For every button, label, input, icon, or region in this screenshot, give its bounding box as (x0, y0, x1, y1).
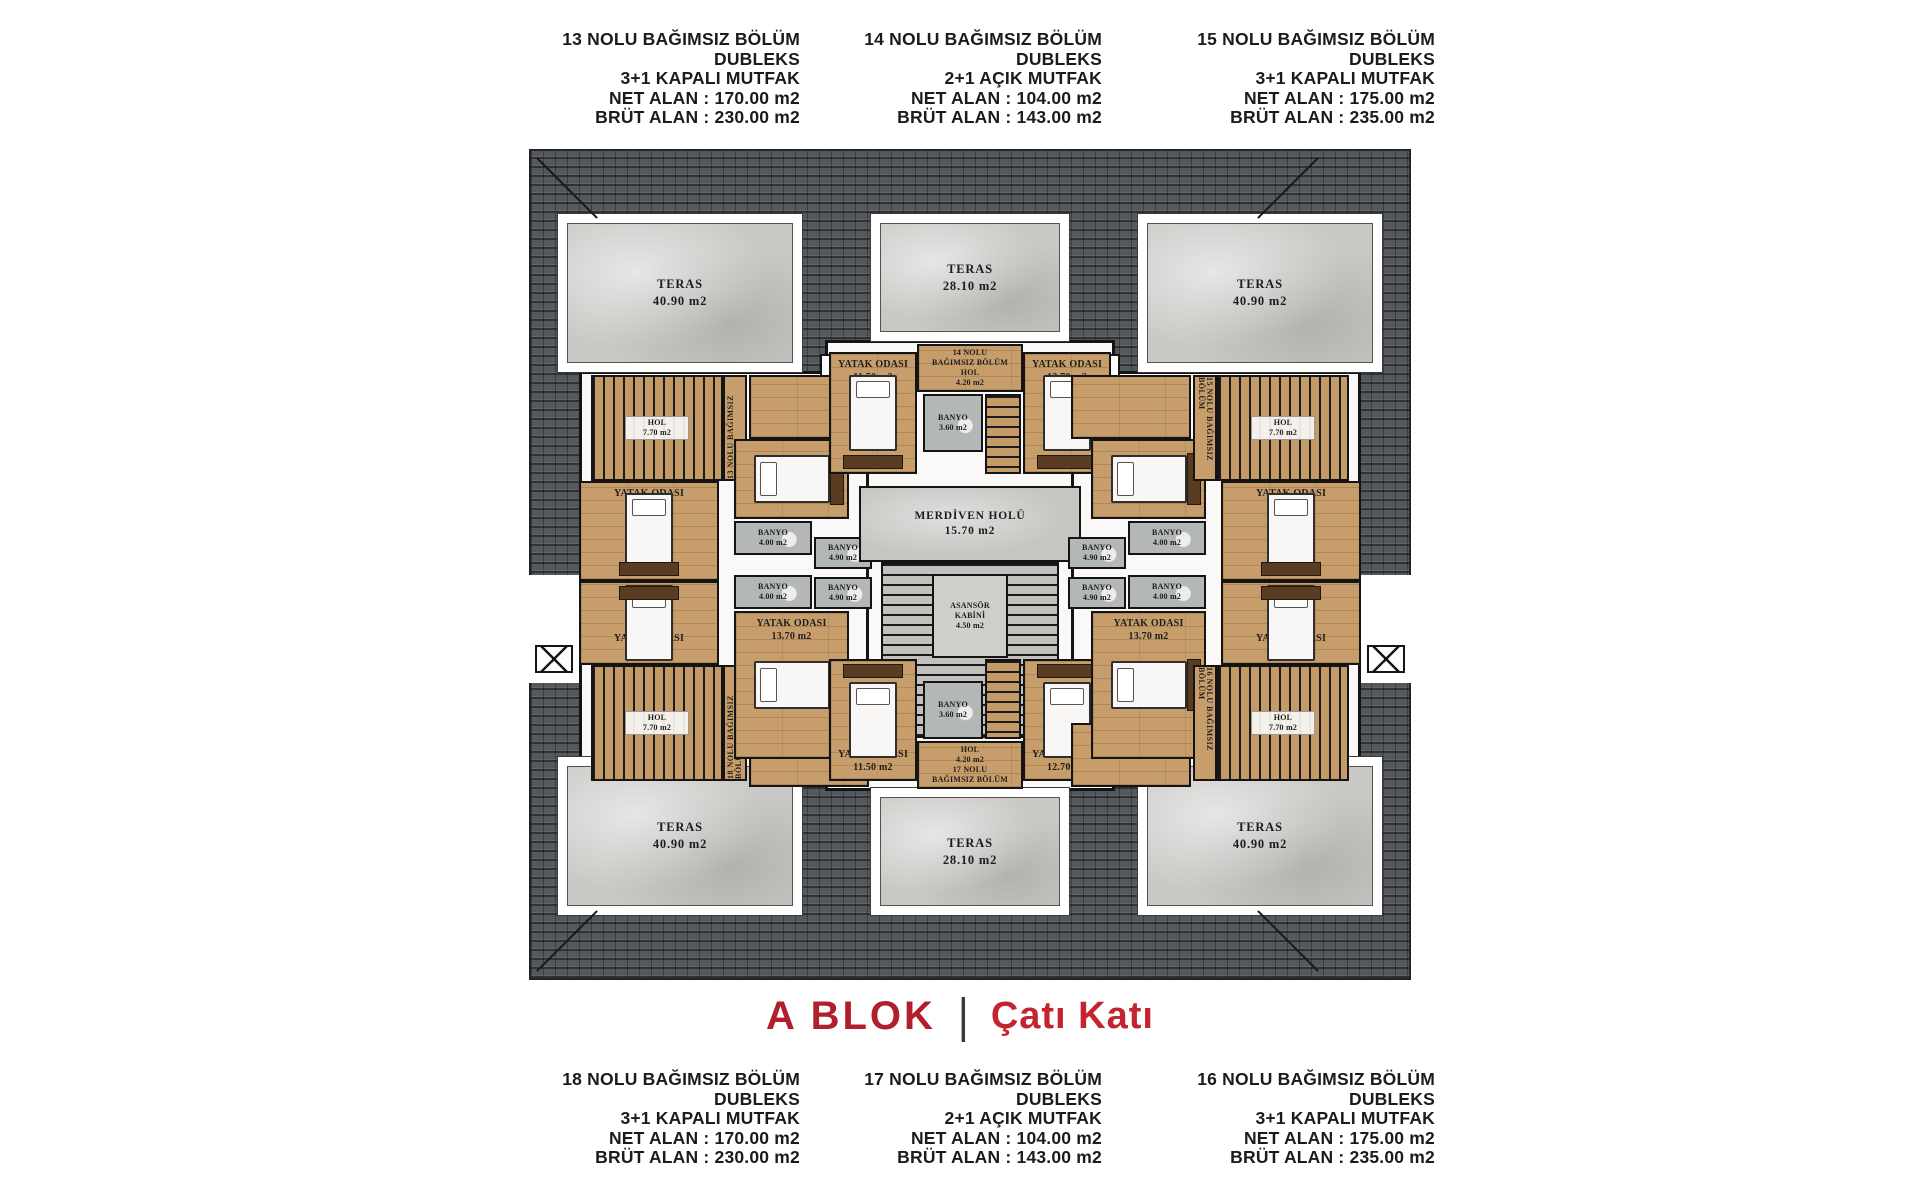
hol-770: HOL7.70 m2 (1217, 665, 1349, 781)
unit-type: DUBLEKS (1105, 50, 1435, 70)
banyo-490-label: BANYO4.90 m2 (818, 583, 868, 603)
banyo-400-label: BANYO4.00 m2 (1132, 528, 1202, 548)
unit-kitchen: 2+1 AÇIK MUTFAK (772, 1109, 1102, 1129)
wardrobe-icon (1261, 586, 1321, 600)
unit-name: 18 NOLU BAĞIMSIZ BÖLÜM (470, 1070, 800, 1090)
unit-info-14: 14 NOLU BAĞIMSIZ BÖLÜMDUBLEKS2+1 AÇIK MU… (772, 30, 1102, 128)
bed-1500: YATAK ODASI15.00 m2 (579, 581, 719, 665)
unit-net: NET ALAN : 175.00 m2 (1105, 89, 1435, 109)
xbox (1367, 645, 1405, 673)
bed-icon (1111, 455, 1187, 503)
unit-type: DUBLEKS (470, 50, 800, 70)
terrace-floor: TERAS28.10 m2 (880, 797, 1060, 906)
terrace-floor: TERAS40.90 m2 (567, 223, 793, 363)
wardrobe-icon (619, 586, 679, 600)
plan-title: A BLOK | Çatı Katı (0, 992, 1920, 1040)
block-name: A BLOK (766, 994, 936, 1039)
unit-name: 16 NOLU BAĞIMSIZ BÖLÜM (1105, 1070, 1435, 1090)
bed-1500: YATAK ODASI15.00 m2 (1221, 481, 1361, 581)
banyo-490-label: BANYO4.90 m2 (1072, 583, 1122, 603)
unit-net: NET ALAN : 170.00 m2 (470, 89, 800, 109)
stair (985, 394, 1021, 474)
bed-1500: YATAK ODASI15.00 m2 (1221, 581, 1361, 665)
banyo-360-label: BANYO3.60 m2 (927, 413, 979, 433)
bed-1370-label: YATAK ODASI13.70 m2 (1095, 617, 1202, 643)
unit14-hall-label: 14 NOLUBAĞIMSIZ BÖLÜMHOL4.20 m2 (921, 348, 1019, 388)
unit17-hall-label: HOL4.20 m217 NOLUBAĞIMSIZ BÖLÜM (921, 745, 1019, 785)
teras-28: TERAS28.10 m2 (870, 787, 1070, 916)
terrace-floor: TERAS40.90 m2 (567, 766, 793, 906)
hol-770-label: HOL7.70 m2 (1251, 416, 1315, 440)
teras-40: TERAS40.90 m2 (557, 213, 803, 373)
terrace-floor: TERAS40.90 m2 (1147, 766, 1373, 906)
hol-770: HOL7.70 m2 (591, 375, 723, 481)
teras-28-label: TERAS28.10 m2 (883, 261, 1057, 295)
unit17-hall: HOL4.20 m217 NOLUBAĞIMSIZ BÖLÜM (917, 741, 1023, 789)
hol-770-label: HOL7.70 m2 (1251, 711, 1315, 735)
wardrobe-icon (843, 455, 903, 469)
banyo-400: BANYO4.00 m2 (1128, 575, 1206, 609)
bed-1150: YATAK ODASI11.50 m2 (829, 352, 917, 474)
unit-brut: BRÜT ALAN : 235.00 m2 (1105, 108, 1435, 128)
unit15-v: 15 NOLU BAĞIMSIZ BÖLÜM (1193, 375, 1217, 481)
unit-brut: BRÜT ALAN : 230.00 m2 (470, 108, 800, 128)
unit-net: NET ALAN : 170.00 m2 (470, 1129, 800, 1149)
bed-1370: YATAK ODASI13.70 m2 (1091, 611, 1206, 759)
hol-770: HOL7.70 m2 (591, 665, 723, 781)
unit-kitchen: 3+1 KAPALI MUTFAK (470, 1109, 800, 1129)
bed-1370-label: YATAK ODASI13.70 m2 (738, 617, 845, 643)
wood (1071, 375, 1191, 439)
teras-28-label: TERAS28.10 m2 (883, 835, 1057, 869)
unit-brut: BRÜT ALAN : 235.00 m2 (1105, 1148, 1435, 1168)
bed-icon (849, 375, 897, 451)
banyo-360-label: BANYO3.60 m2 (927, 700, 979, 720)
banyo-490: BANYO4.90 m2 (1068, 537, 1126, 569)
terrace-floor: TERAS28.10 m2 (880, 223, 1060, 332)
banyo-360: BANYO3.60 m2 (923, 681, 983, 739)
hol-770-label: HOL7.70 m2 (625, 711, 689, 735)
banyo-400-label: BANYO4.00 m2 (738, 528, 808, 548)
unit-name: 14 NOLU BAĞIMSIZ BÖLÜM (772, 30, 1102, 50)
unit-type: DUBLEKS (772, 50, 1102, 70)
wardrobe-icon (1037, 664, 1097, 678)
unit-type: DUBLEKS (772, 1090, 1102, 1110)
banyo-400: BANYO4.00 m2 (734, 575, 812, 609)
banyo-360: BANYO3.60 m2 (923, 394, 983, 452)
teras-40-label: TERAS40.90 m2 (1150, 276, 1370, 310)
floor-plan: TERAS40.90 m2TERAS28.10 m2TERAS40.90 m2T… (529, 149, 1411, 980)
unit-info-13: 13 NOLU BAĞIMSIZ BÖLÜMDUBLEKS3+1 KAPALI … (470, 30, 800, 128)
wardrobe-icon (843, 664, 903, 678)
banyo-490-label: BANYO4.90 m2 (1072, 543, 1122, 563)
unit-info-16: 16 NOLU BAĞIMSIZ BÖLÜMDUBLEKS3+1 KAPALI … (1105, 1070, 1435, 1168)
stair (985, 659, 1021, 739)
bed-icon (625, 493, 673, 569)
floor-name: Çatı Katı (991, 995, 1154, 1038)
unit16-v: 16 NOLU BAĞIMSIZ BÖLÜM (1193, 665, 1217, 781)
teras-28: TERAS28.10 m2 (870, 213, 1070, 342)
xbox (535, 645, 573, 673)
banyo-400: BANYO4.00 m2 (734, 521, 812, 555)
terrace-floor: TERAS40.90 m2 (1147, 223, 1373, 363)
unit-info-15: 15 NOLU BAĞIMSIZ BÖLÜMDUBLEKS3+1 KAPALI … (1105, 30, 1435, 128)
teras-40-label: TERAS40.90 m2 (1150, 819, 1370, 853)
unit-name: 13 NOLU BAĞIMSIZ BÖLÜM (470, 30, 800, 50)
unit-kitchen: 3+1 KAPALI MUTFAK (470, 69, 800, 89)
bed-1370: YATAK ODASI13.70 m2 (1091, 439, 1206, 519)
teras-40-label: TERAS40.90 m2 (570, 819, 790, 853)
unit-net: NET ALAN : 104.00 m2 (772, 1129, 1102, 1149)
banyo-400-label: BANYO4.00 m2 (738, 582, 808, 602)
unit-brut: BRÜT ALAN : 143.00 m2 (772, 108, 1102, 128)
hol-770-label: HOL7.70 m2 (625, 416, 689, 440)
bed-1500: YATAK ODASI15.00 m2 (579, 481, 719, 581)
merdiven: MERDİVEN HOLÜ15.70 m2 (859, 486, 1081, 562)
unit-kitchen: 3+1 KAPALI MUTFAK (1105, 1109, 1435, 1129)
unit-kitchen: 3+1 KAPALI MUTFAK (1105, 69, 1435, 89)
wardrobe-icon (619, 562, 679, 576)
wardrobe-icon (1037, 455, 1097, 469)
unit-net: NET ALAN : 104.00 m2 (772, 89, 1102, 109)
title-divider: | (958, 988, 969, 1043)
unit-info-17: 17 NOLU BAĞIMSIZ BÖLÜMDUBLEKS2+1 AÇIK MU… (772, 1070, 1102, 1168)
unit-brut: BRÜT ALAN : 230.00 m2 (470, 1148, 800, 1168)
hol-770: HOL7.70 m2 (1217, 375, 1349, 481)
banyo-490: BANYO4.90 m2 (814, 577, 872, 609)
unit-name: 15 NOLU BAĞIMSIZ BÖLÜM (1105, 30, 1435, 50)
bed-icon (754, 455, 830, 503)
bed-icon (1267, 493, 1315, 569)
bed-icon (754, 661, 830, 709)
unit-type: DUBLEKS (470, 1090, 800, 1110)
banyo-400-label: BANYO4.00 m2 (1132, 582, 1202, 602)
unit-net: NET ALAN : 175.00 m2 (1105, 1129, 1435, 1149)
bed-icon (1111, 661, 1187, 709)
asansor-label: ASANSÖRKABİNİ4.50 m2 (936, 601, 1004, 631)
unit-name: 17 NOLU BAĞIMSIZ BÖLÜM (772, 1070, 1102, 1090)
wardrobe-icon (1261, 562, 1321, 576)
banyo-490: BANYO4.90 m2 (1068, 577, 1126, 609)
bed-icon (849, 682, 897, 758)
teras-40-label: TERAS40.90 m2 (570, 276, 790, 310)
unit-info-18: 18 NOLU BAĞIMSIZ BÖLÜMDUBLEKS3+1 KAPALI … (470, 1070, 800, 1168)
unit-type: DUBLEKS (1105, 1090, 1435, 1110)
unit-kitchen: 2+1 AÇIK MUTFAK (772, 69, 1102, 89)
merdiven-label: MERDİVEN HOLÜ15.70 m2 (863, 509, 1077, 539)
banyo-400: BANYO4.00 m2 (1128, 521, 1206, 555)
teras-40: TERAS40.90 m2 (1137, 213, 1383, 373)
unit14-hall: 14 NOLUBAĞIMSIZ BÖLÜMHOL4.20 m2 (917, 344, 1023, 392)
asansor: ASANSÖRKABİNİ4.50 m2 (932, 574, 1008, 658)
unit-brut: BRÜT ALAN : 143.00 m2 (772, 1148, 1102, 1168)
bed-1150: YATAK ODASI11.50 m2 (829, 659, 917, 781)
